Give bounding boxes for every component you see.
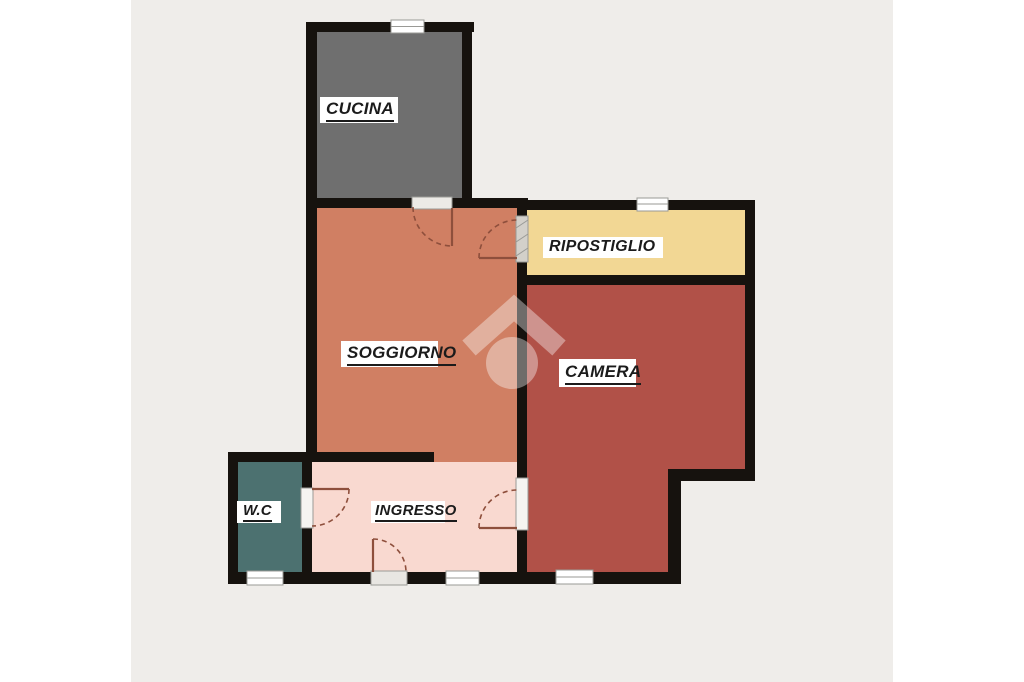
wall-cucina-right bbox=[462, 22, 472, 208]
wall-right-outer bbox=[745, 200, 755, 481]
room-label-cucina-text: CUCINA bbox=[326, 99, 394, 122]
watermark-circle-icon bbox=[486, 337, 538, 389]
door-threshold-cucina bbox=[412, 197, 452, 209]
room-label-ingresso: INGRESSO bbox=[371, 501, 445, 523]
room-label-ingresso-text: INGRESSO bbox=[375, 502, 457, 522]
wall-cucina-top bbox=[306, 22, 474, 32]
door-threshold-wc bbox=[301, 488, 313, 528]
wall-left-outer bbox=[306, 22, 317, 462]
door-threshold-entrance bbox=[371, 571, 407, 585]
door-threshold-camera bbox=[516, 478, 528, 530]
wall-camera-notch-vertical bbox=[668, 469, 681, 584]
wall-ingresso-top bbox=[228, 452, 434, 462]
floorplan-page: CUCINA SOGGIORNO RIPOSTIGLIO CAMERA INGR… bbox=[0, 0, 1024, 682]
room-label-wc-text: W.C bbox=[243, 502, 272, 522]
room-label-ripostiglio: RIPOSTIGLIO bbox=[543, 237, 663, 258]
room-label-soggiorno: SOGGIORNO bbox=[341, 341, 438, 367]
room-label-camera: CAMERA bbox=[559, 359, 636, 387]
wall-ripostiglio-bottom bbox=[517, 275, 755, 285]
room-label-soggiorno-text: SOGGIORNO bbox=[347, 343, 456, 366]
room-label-camera-text: CAMERA bbox=[565, 362, 641, 385]
room-label-ripostiglio-text: RIPOSTIGLIO bbox=[549, 238, 655, 257]
room-ingresso-floor bbox=[302, 462, 527, 584]
room-label-cucina: CUCINA bbox=[320, 97, 398, 123]
wall-camera-notch-horizontal bbox=[668, 469, 755, 481]
floorplan-drawing bbox=[0, 0, 1024, 682]
room-label-wc: W.C bbox=[237, 501, 281, 523]
